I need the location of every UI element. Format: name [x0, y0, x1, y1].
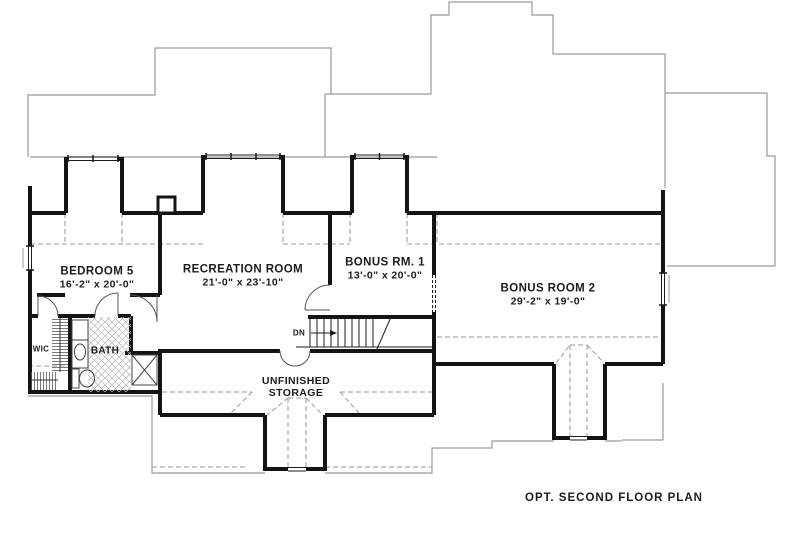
- wic-rod-hatch-bottom: [30, 372, 58, 390]
- room-dims: 13'-0" x 20'-0": [345, 270, 425, 282]
- room-name: BONUS ROOM 2: [501, 282, 596, 295]
- room-name: BONUS RM. 1: [345, 256, 425, 269]
- room-name: BEDROOM 5: [60, 265, 135, 278]
- room-label-bonus-rm-1: BONUS RM. 1 13'-0" x 20'-0": [345, 256, 425, 281]
- room-dims: STORAGE: [262, 387, 330, 399]
- floor-plan: BEDROOM 5 16'-2" x 20'-0" RECREATION ROO…: [0, 0, 800, 533]
- label-bath: BATH: [91, 346, 119, 357]
- room-name: UNFINISHED: [262, 375, 330, 387]
- room-label-unfinished-storage: UNFINISHED STORAGE: [262, 375, 330, 399]
- room-label-bedroom-5: BEDROOM 5 16'-2" x 20'-0": [60, 265, 135, 290]
- wic-hanging-rods: [30, 318, 68, 390]
- label-dn: DN: [293, 329, 305, 338]
- label-wic: WIC: [33, 345, 49, 354]
- chimney-chase: [158, 197, 175, 213]
- walls: [28, 155, 663, 469]
- room-name: RECREATION ROOM: [183, 263, 303, 276]
- room-dims: 29'-2" x 19'-0": [501, 296, 596, 308]
- stair-break-line: [377, 317, 391, 349]
- room-dims: 21'-0" x 23'-10": [183, 277, 303, 289]
- windows: [23, 153, 669, 471]
- room-dims: 16'-2" x 20'-0": [60, 279, 135, 291]
- shower-x: [132, 355, 157, 385]
- room-label-recreation-room: RECREATION ROOM 21'-0" x 23'-10": [183, 263, 303, 288]
- toilet-tank: [72, 369, 79, 388]
- stairs: [296, 317, 432, 349]
- plan-caption: OPT. SECOND FLOOR PLAN: [525, 492, 703, 504]
- room-label-bonus-room-2: BONUS ROOM 2 29'-2" x 19'-0": [501, 282, 596, 307]
- down-arrow-head: [330, 330, 337, 336]
